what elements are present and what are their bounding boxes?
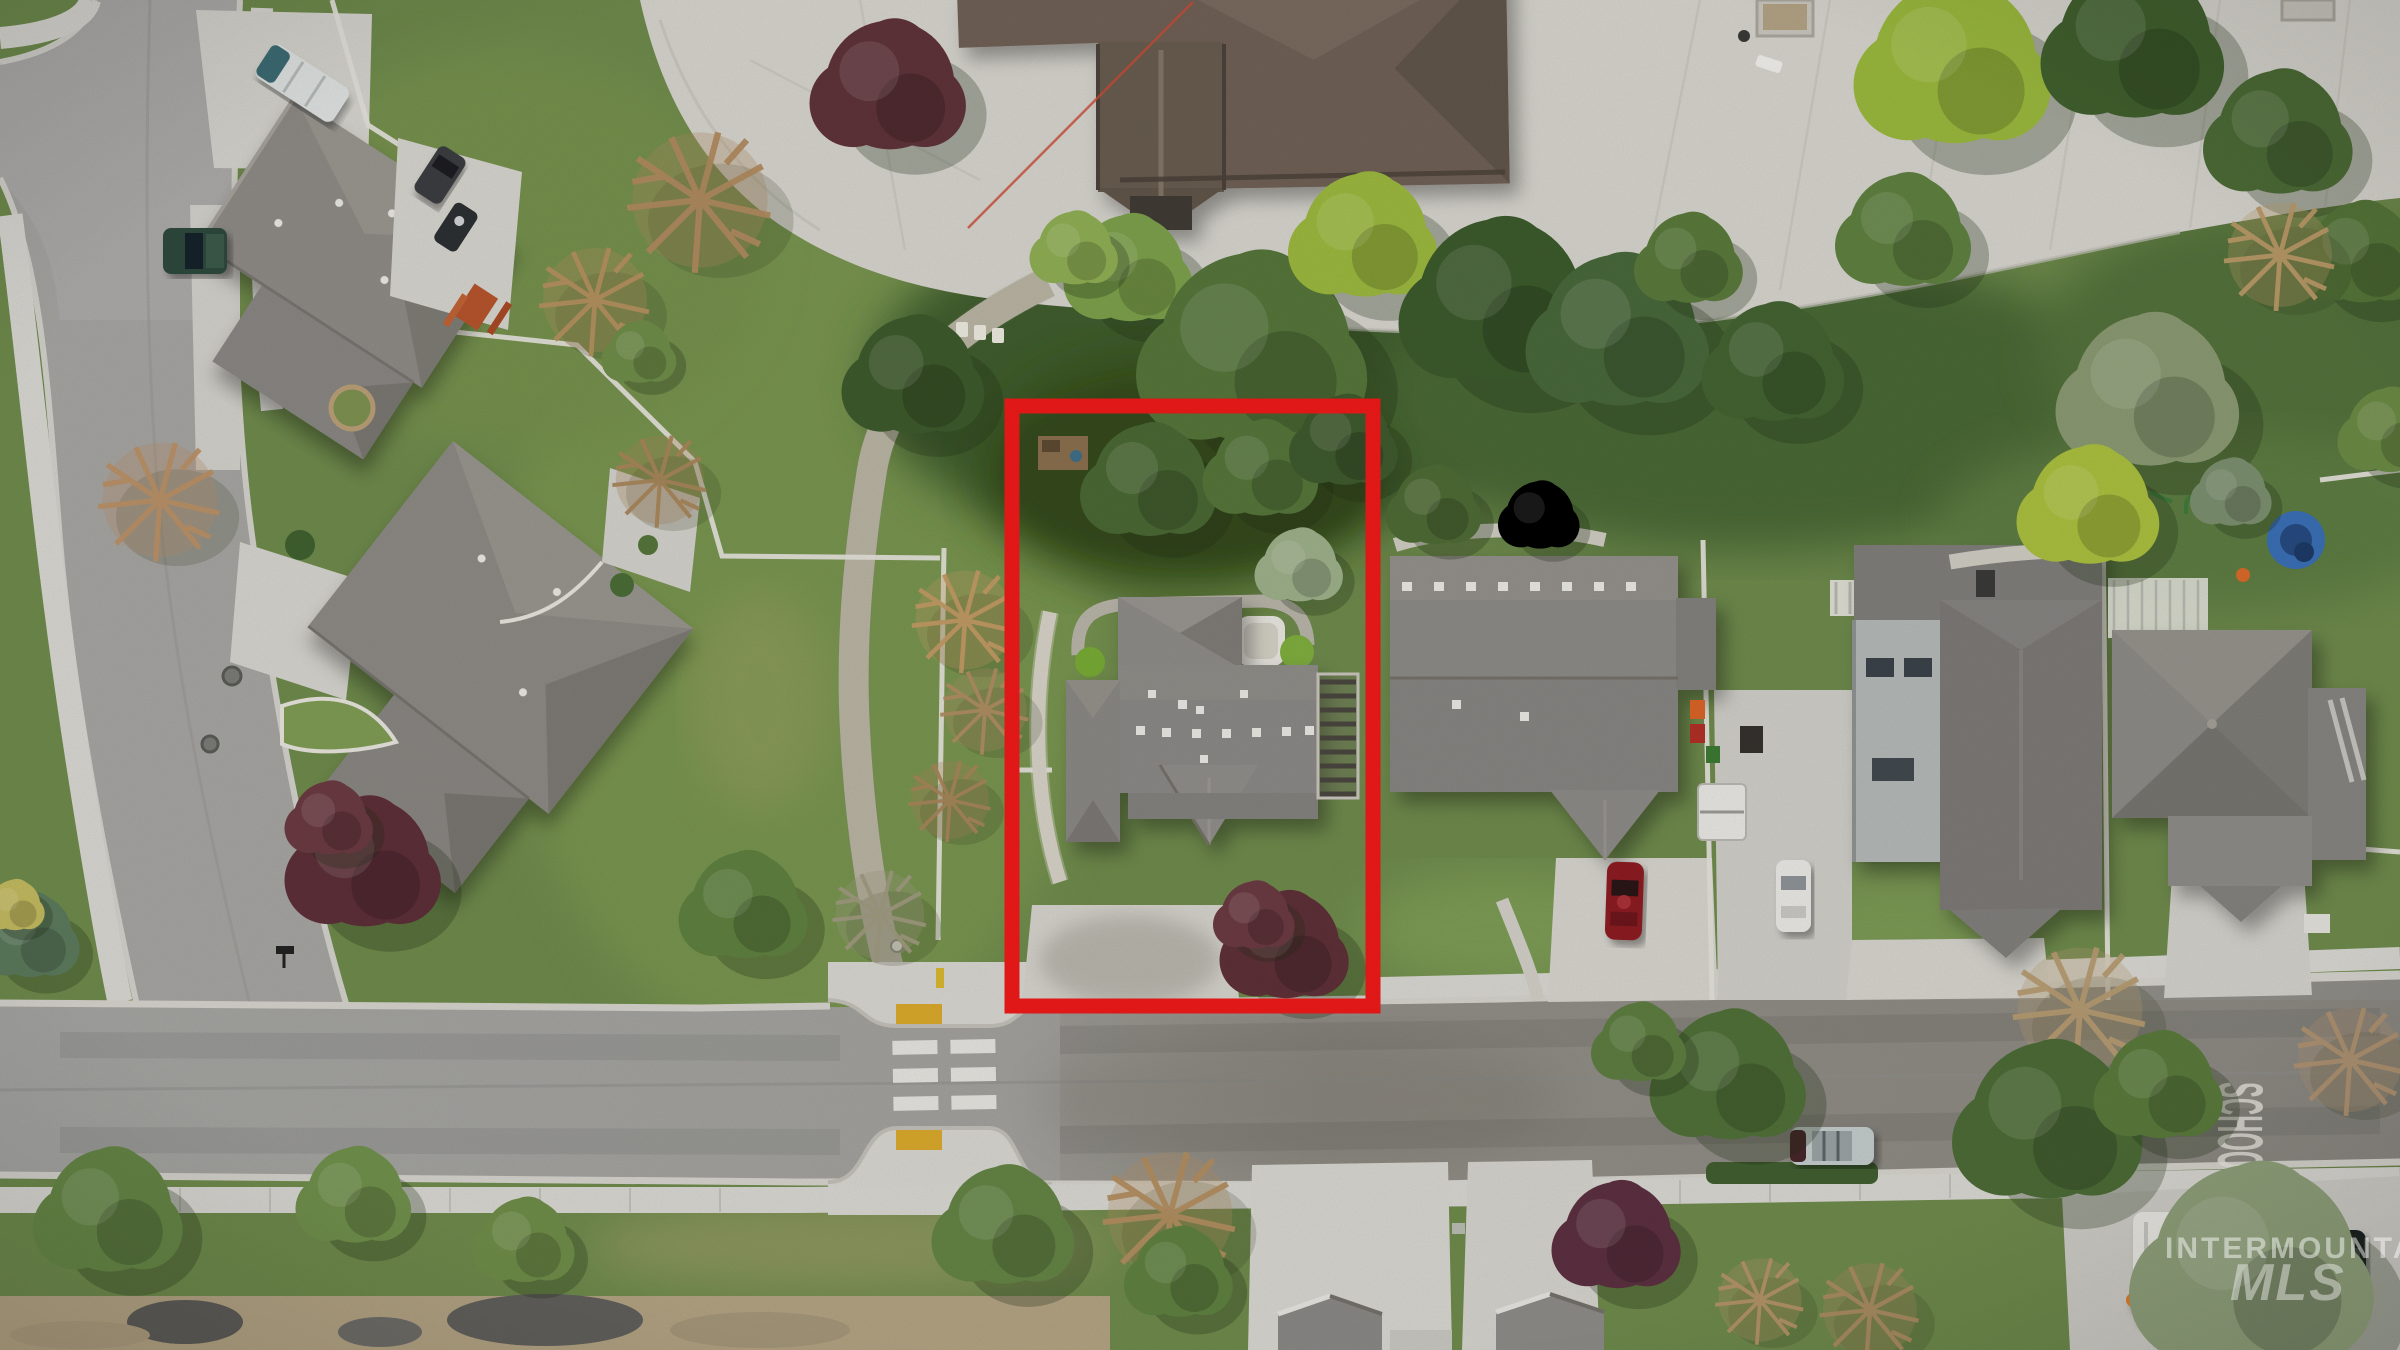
aerial-scene: SCHOOL xyxy=(0,0,2400,1350)
vignette xyxy=(0,0,2400,1350)
aerial-photo: SCHOOL xyxy=(0,0,2400,1350)
watermark-line2: MLS xyxy=(2230,1254,2346,1312)
